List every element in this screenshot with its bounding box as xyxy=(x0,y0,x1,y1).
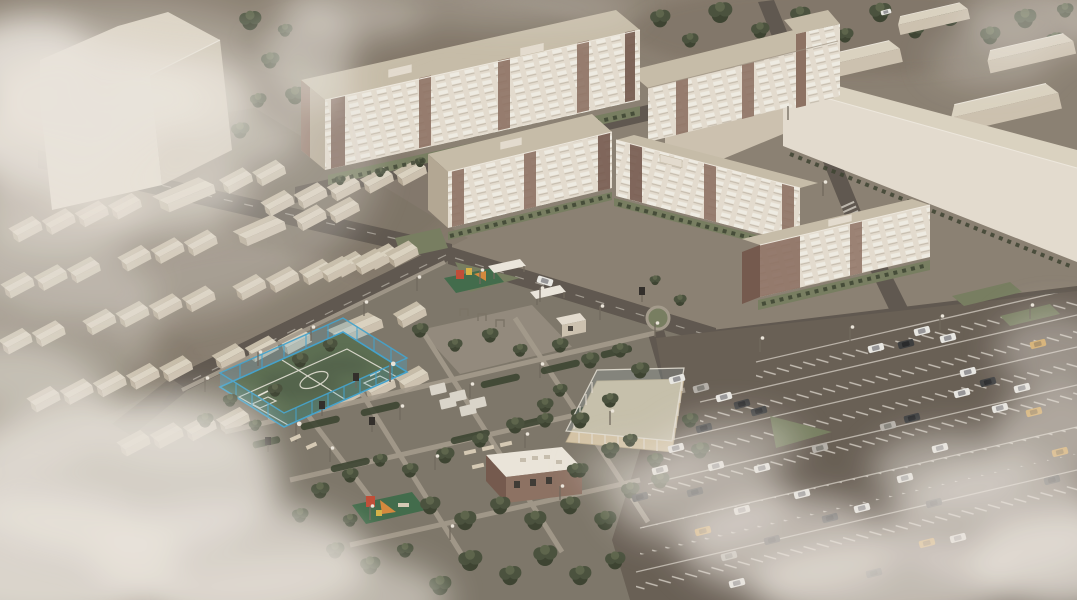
architectural-render: Aerial 3D architectural rendering of a r… xyxy=(0,0,1077,600)
sepia-overlay xyxy=(0,0,1077,600)
render-viewport: Aerial 3D architectural rendering of a r… xyxy=(0,0,1077,600)
